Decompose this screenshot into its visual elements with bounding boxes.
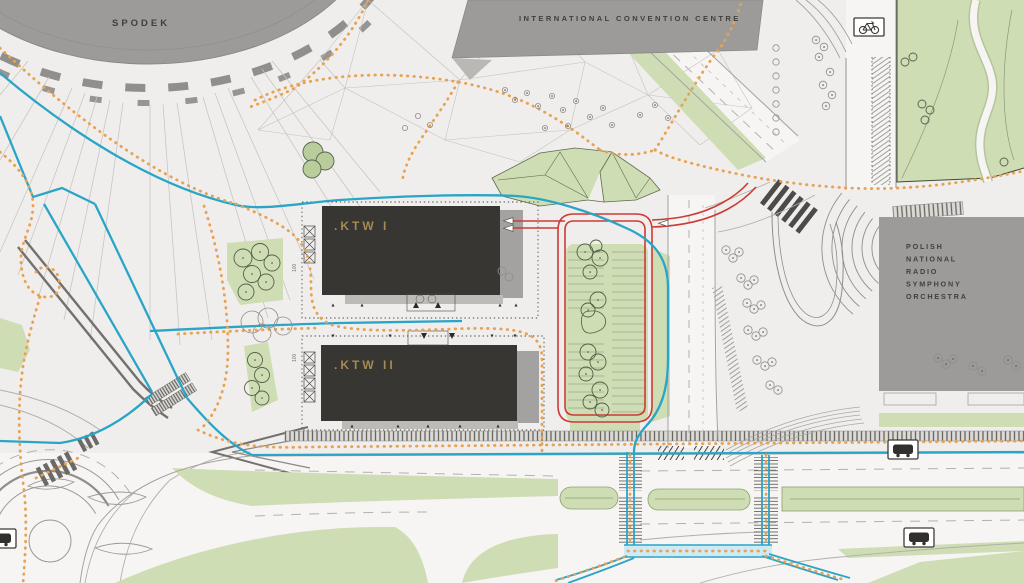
icc-building — [452, 0, 763, 58]
green-field-northeast — [897, 0, 1024, 182]
svg-text:ORCHESTRA: ORCHESTRA — [906, 292, 968, 301]
nospr-building — [879, 217, 1024, 391]
svg-text:SYMPHONY: SYMPHONY — [906, 280, 962, 289]
green-strip-nospr — [879, 413, 1024, 427]
icc-label: INTERNATIONAL CONVENTION CENTRE — [519, 14, 741, 23]
site-plan-map: 100 100 SPODEK INTERNATIONAL CONVENTION … — [0, 0, 1024, 583]
bicycle-parking — [854, 18, 884, 36]
ktw2-label: .KTW II — [334, 358, 396, 372]
bus-stop-west — [0, 529, 16, 548]
svg-text:RADIO: RADIO — [906, 267, 938, 276]
ktw1-label: .KTW I — [334, 219, 389, 233]
green-patch-west1 — [227, 238, 283, 305]
bus-stop-east2 — [904, 528, 934, 547]
ktw2-podium — [517, 351, 539, 423]
spodek-label: SPODEK — [112, 18, 170, 29]
site-plan-canvas: 100 100 SPODEK INTERNATIONAL CONVENTION … — [0, 0, 1024, 583]
svg-text:POLISH: POLISH — [906, 242, 944, 251]
dimension-label-1: 100 — [292, 263, 298, 272]
bus-stop-east1 — [888, 440, 918, 459]
dimension-label-2: 100 — [292, 353, 298, 362]
ktw2-building — [321, 345, 517, 421]
svg-text:NATIONAL: NATIONAL — [906, 255, 957, 264]
parking-area — [566, 244, 648, 436]
